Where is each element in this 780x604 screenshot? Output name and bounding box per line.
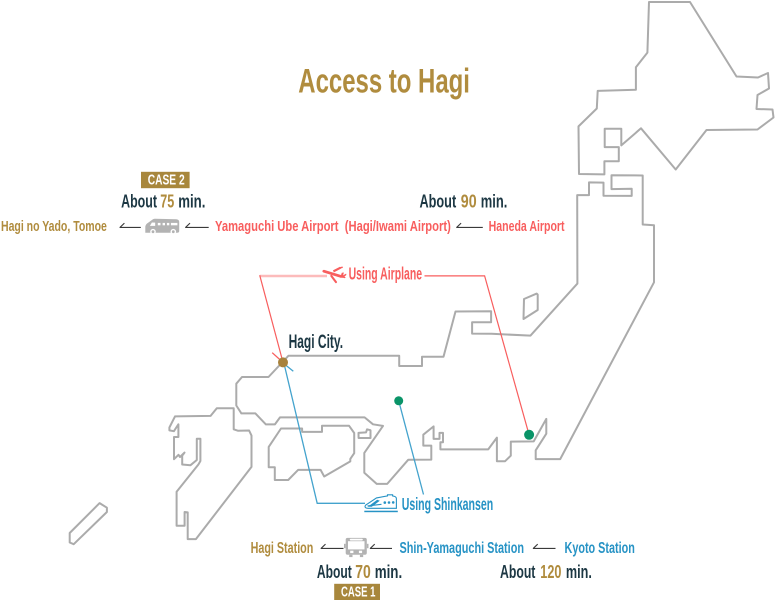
svg-text:90: 90 [461, 192, 477, 212]
svg-text:Haneda Airport: Haneda Airport [489, 217, 565, 234]
svg-text:About: About [317, 563, 352, 583]
svg-text:CASE 1: CASE 1 [341, 583, 375, 600]
svg-text:About: About [500, 563, 536, 583]
svg-text:Hagi Station: Hagi Station [251, 539, 314, 556]
svg-text:min.: min. [178, 191, 205, 212]
svg-text:Kyoto Station: Kyoto Station [565, 539, 635, 556]
svg-text:Shin-Yamaguchi Station: Shin-Yamaguchi Station [400, 539, 524, 556]
svg-text:Access to Hagi: Access to Hagi [298, 62, 470, 100]
svg-text:min.: min. [481, 193, 508, 213]
svg-text:About: About [121, 192, 157, 212]
svg-text:min.: min. [566, 563, 592, 583]
svg-text:70: 70 [355, 562, 370, 582]
svg-text:Yamaguchi Ube Airport (Hagi/I: Yamaguchi Ube Airport (Hagi/Iwami Airpor… [215, 217, 451, 234]
svg-text:75: 75 [160, 192, 174, 212]
svg-text:Hagi no Yado, Tomoe: Hagi no Yado, Tomoe [1, 217, 107, 234]
svg-text:CASE 2: CASE 2 [148, 170, 185, 188]
svg-text:min.: min. [375, 562, 402, 583]
svg-text:Using Airplane: Using Airplane [349, 265, 422, 284]
svg-text:Hagi City.: Hagi City. [289, 332, 343, 352]
svg-text:About: About [420, 192, 457, 212]
svg-text:120: 120 [540, 563, 561, 583]
svg-text:Using Shinkansen: Using Shinkansen [402, 495, 493, 514]
